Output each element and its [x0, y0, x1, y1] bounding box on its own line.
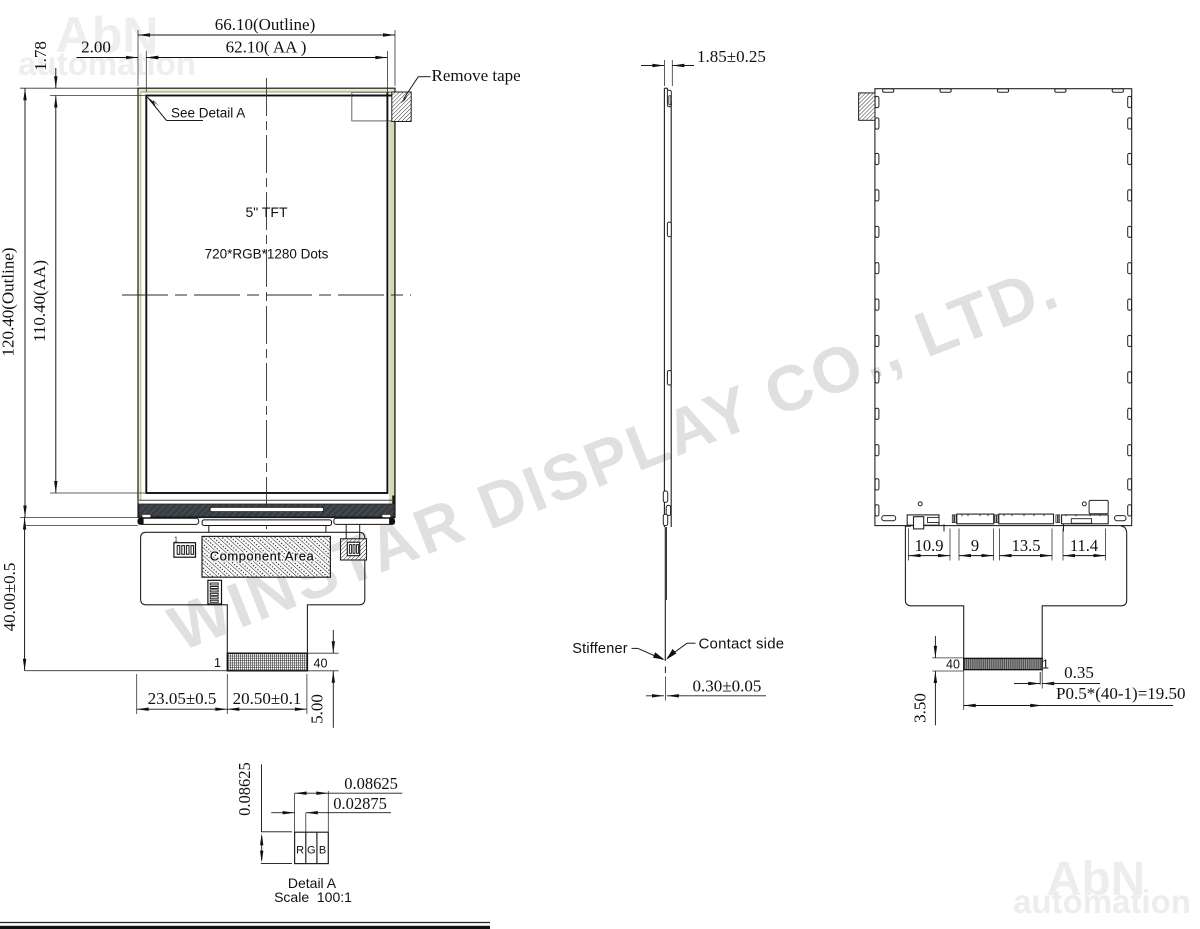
svg-text:5" TFT: 5" TFT [245, 204, 287, 220]
svg-text:3.50: 3.50 [911, 693, 930, 723]
svg-text:0.08625: 0.08625 [235, 762, 254, 816]
svg-text:40.00±0.5: 40.00±0.5 [0, 563, 19, 632]
svg-text:P0.5*(40-1)=19.50: P0.5*(40-1)=19.50 [1056, 684, 1186, 703]
svg-text:1: 1 [214, 656, 221, 670]
svg-text:40: 40 [314, 657, 328, 671]
svg-text:1.85±0.25: 1.85±0.25 [697, 47, 766, 66]
svg-text:10.9: 10.9 [915, 536, 944, 555]
svg-text:1: 1 [174, 537, 178, 544]
svg-text:R: R [296, 845, 304, 857]
svg-text:40: 40 [946, 658, 960, 672]
svg-text:G: G [307, 845, 316, 857]
svg-text:13.5: 13.5 [1012, 536, 1041, 555]
svg-text:0.08625: 0.08625 [344, 774, 398, 793]
svg-text:Scale 100:1: Scale 100:1 [274, 889, 352, 905]
svg-text:Remove tape: Remove tape [432, 66, 521, 85]
svg-text:Stiffener: Stiffener [572, 641, 628, 657]
svg-text:62.10( AA ): 62.10( AA ) [226, 38, 307, 57]
svg-text:See Detail A: See Detail A [171, 106, 245, 121]
svg-text:110.40(AA): 110.40(AA) [30, 260, 49, 342]
svg-text:23.05±0.5: 23.05±0.5 [148, 689, 217, 708]
svg-text:0.35: 0.35 [1064, 663, 1094, 682]
svg-text:Component Area: Component Area [210, 549, 315, 564]
svg-text:0.30±0.05: 0.30±0.05 [693, 677, 762, 696]
svg-text:9: 9 [971, 536, 979, 555]
svg-text:0.02875: 0.02875 [333, 794, 387, 813]
svg-text:automation: automation [1013, 883, 1191, 920]
svg-text:2.00: 2.00 [81, 38, 111, 57]
svg-text:11.4: 11.4 [1070, 536, 1098, 555]
svg-text:20.50±0.1: 20.50±0.1 [233, 689, 302, 708]
svg-text:B: B [319, 845, 326, 857]
svg-text:1: 1 [1042, 658, 1049, 672]
svg-text:5.00: 5.00 [308, 694, 327, 724]
svg-text:1.78: 1.78 [31, 41, 50, 71]
svg-text:66.10(Outline): 66.10(Outline) [215, 15, 316, 34]
svg-text:120.40(Outline): 120.40(Outline) [0, 247, 18, 356]
svg-text:720*RGB*1280 Dots: 720*RGB*1280 Dots [205, 247, 329, 262]
svg-text:Contact side: Contact side [699, 636, 785, 653]
